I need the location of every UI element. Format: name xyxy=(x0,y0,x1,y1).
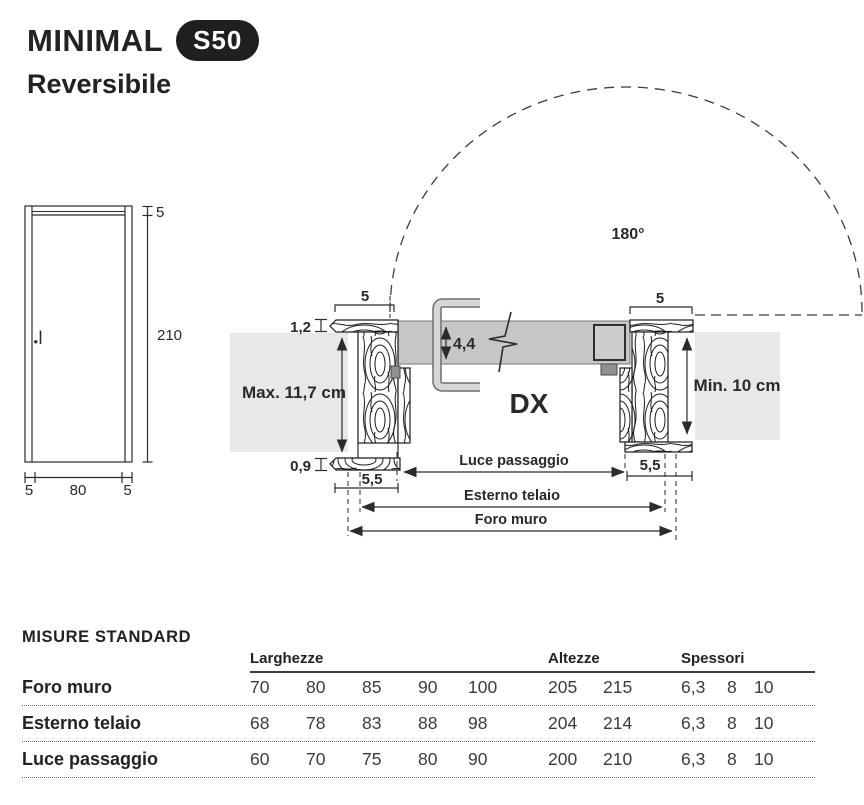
row-label: Esterno telaio xyxy=(22,713,250,734)
door-elevation: 5 210 5 80 5 xyxy=(25,204,182,499)
casing-right-label: 5,5 xyxy=(640,457,661,474)
architrave-bottom-label: 0,9 xyxy=(290,458,311,475)
door-leaf: 4,4 DX xyxy=(393,303,630,419)
table-header-row: Larghezze Altezze Spessori xyxy=(22,650,815,670)
elevation-frame-top-label: 5 xyxy=(156,204,164,221)
door-swing-arc: 180° xyxy=(390,87,862,318)
elevation-frame-right-label: 5 xyxy=(123,482,131,499)
latch-plate xyxy=(601,364,617,375)
jamb-width-right-label: 5 xyxy=(656,290,664,307)
esterno-telaio-label: Esterno telaio xyxy=(464,488,560,504)
elevation-height-label: 210 xyxy=(157,327,182,344)
architrave-top-label: 1,2 xyxy=(290,319,311,336)
pivot-plate xyxy=(391,366,400,378)
wall-max-label: Max. 11,7 cm xyxy=(242,383,346,402)
table-row: Luce passaggio 60 70 75 80 90 200 210 6,… xyxy=(22,742,815,778)
right-jamb-section xyxy=(620,320,693,452)
spec-sheet-page: MINIMAL S50 Reversibile xyxy=(0,0,864,805)
misure-standard-table: MISURE STANDARD Larghezze Altezze Spesso… xyxy=(22,628,815,778)
casing-left-label: 5,5 xyxy=(362,471,383,488)
col-group-altezze: Altezze xyxy=(548,650,681,673)
technical-diagram: 180° Max. 11,7 cm Min. 10 cm 4,4 DX xyxy=(0,55,864,605)
table-title: MISURE STANDARD xyxy=(22,628,815,650)
wall-min-label: Min. 10 cm xyxy=(694,376,781,395)
door-handle-icon xyxy=(34,331,40,345)
table-row: Esterno telaio 68 78 83 88 98 204 214 6,… xyxy=(22,706,815,742)
row-label: Foro muro xyxy=(22,677,250,698)
swing-angle-label: 180° xyxy=(611,226,644,243)
table-row: Foro muro 70 80 85 90 100 205 215 6,3 8 … xyxy=(22,670,815,706)
luce-passaggio-label: Luce passaggio xyxy=(459,453,569,469)
col-group-spessori: Spessori xyxy=(681,650,815,673)
jamb-width-left-label: 5 xyxy=(361,288,369,305)
foro-muro-label: Foro muro xyxy=(475,512,548,528)
row-label: Luce passaggio xyxy=(22,749,250,770)
hand-label: DX xyxy=(510,388,549,419)
elevation-frame-left-label: 5 xyxy=(25,482,33,499)
lock-box xyxy=(594,325,625,360)
col-group-larghezze: Larghezze xyxy=(250,650,548,673)
product-name: MINIMAL xyxy=(27,23,163,59)
elevation-width-label: 80 xyxy=(70,482,87,499)
leaf-thickness-label: 4,4 xyxy=(453,336,475,353)
